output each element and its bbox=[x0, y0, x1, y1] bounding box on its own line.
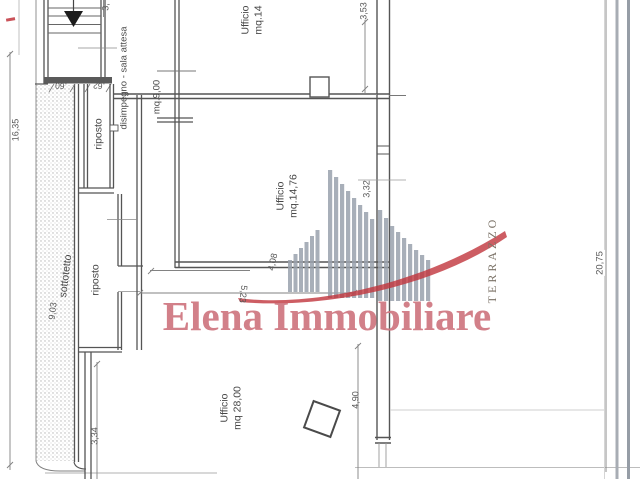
office-middle-name: Ufficio bbox=[274, 174, 287, 218]
red-mark bbox=[6, 17, 15, 22]
office-top-area: mq.14 bbox=[252, 5, 265, 34]
dimension-lines bbox=[7, 0, 606, 479]
dim-top-room-depth: 3,53 bbox=[359, 2, 370, 20]
hallway-area: mq.9,00 bbox=[151, 80, 162, 114]
office-top-label: Ufficio mq.14 bbox=[239, 5, 264, 34]
dim-top-partial: 3, bbox=[101, 3, 112, 11]
storage-lower-label: riposto bbox=[90, 264, 103, 296]
office-middle-area: mq.14,76 bbox=[287, 174, 300, 218]
dim-door-a: .60 bbox=[55, 80, 68, 91]
dim-bottom-depth: 4,90 bbox=[351, 391, 362, 409]
floorplan-page: 16,35 sottotetto 9,03 riposto disimpegno… bbox=[0, 0, 640, 479]
office-bottom-area: mq 28,00 bbox=[231, 386, 244, 430]
terrace-label: TERRAZZO bbox=[485, 217, 499, 304]
dim-terrace-length: 20,75 bbox=[594, 250, 605, 276]
dim-terrace-length-text: 20,75 bbox=[594, 250, 605, 276]
dim-attic-length: 9,03 bbox=[47, 302, 60, 321]
office-bottom-name: Ufficio bbox=[218, 386, 231, 430]
office-middle-label: Ufficio mq.14,76 bbox=[274, 174, 299, 218]
partition-walls bbox=[78, 0, 196, 479]
agency-watermark: Elena Immobiliare bbox=[163, 292, 491, 340]
office-top-name: Ufficio bbox=[239, 5, 252, 34]
rotated-square bbox=[304, 401, 340, 437]
staircase bbox=[44, 0, 117, 92]
dim-overall-left: 16,35 bbox=[11, 119, 22, 142]
dim-door-b: .62 bbox=[93, 80, 106, 91]
hallway-label: disimpegno - sala attesa bbox=[118, 27, 129, 130]
dim-bottom-left-depth: 3,34 bbox=[90, 427, 101, 445]
storage-upper-label: riposto bbox=[93, 118, 106, 150]
office-bottom-label: Ufficio mq 28,00 bbox=[218, 386, 243, 430]
dim-middle-depth: 3,32 bbox=[362, 180, 373, 198]
floorplan-drawing bbox=[0, 0, 640, 479]
pillar bbox=[310, 77, 329, 97]
